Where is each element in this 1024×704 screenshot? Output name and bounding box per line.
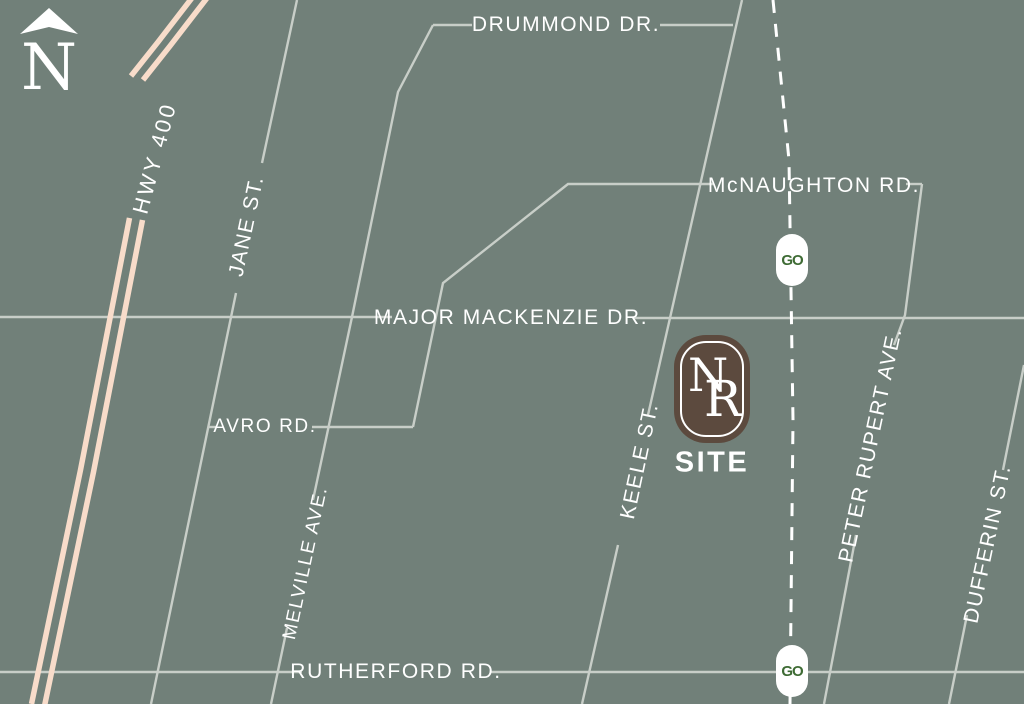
go-transit-icon: GO <box>781 252 802 269</box>
site-monogram-r: R <box>704 374 742 424</box>
road-label-major-mackenzie-dr: MAJOR MACKENZIE DR. <box>374 306 648 330</box>
street-lines <box>0 0 1024 704</box>
site-label: SITE <box>675 447 749 480</box>
site-badge: N R <box>674 335 750 443</box>
compass-north: N <box>18 6 80 106</box>
compass-letter: N <box>21 36 77 100</box>
go-transit-icon: GO <box>781 663 802 680</box>
go-station-south: GO <box>776 645 808 697</box>
railway-line <box>773 0 793 704</box>
road-label-avro-rd: AVRO RD. <box>213 416 316 438</box>
roads-layer <box>0 0 1024 704</box>
road-label-rutherford-rd: RUTHERFORD RD. <box>290 660 501 684</box>
road-label-mcnaughton-rd: McNAUGHTON RD. <box>708 174 920 198</box>
site-location-map: N DRUMMOND DR. McNAUGHTON RD. MAJOR MACK… <box>0 0 1024 704</box>
go-station-north: GO <box>776 234 808 286</box>
road-label-drummond-dr: DRUMMOND DR. <box>472 13 660 37</box>
